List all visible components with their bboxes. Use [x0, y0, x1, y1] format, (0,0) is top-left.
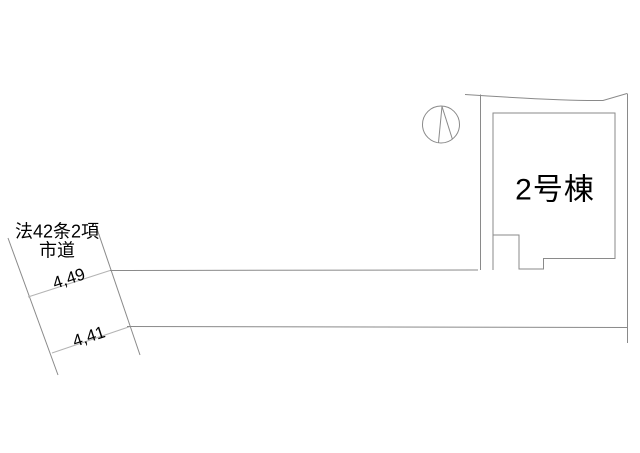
road-type-label: 市道: [39, 242, 75, 261]
bottom-boundary-line: [127, 327, 628, 328]
driveway-upper-boundary-line: [110, 270, 478, 271]
survey-marker-chord-left: [439, 107, 443, 143]
top-boundary-line: [465, 94, 627, 101]
site-plan: 法42条2項 市道 4,49 4,41 2号棟: [0, 0, 640, 453]
survey-marker-circle: [423, 106, 460, 143]
road-law-label: 法42条2項: [15, 223, 99, 242]
survey-marker-icon: [423, 106, 460, 143]
survey-marker-chord-right: [442, 107, 453, 140]
building-label: 2号棟: [515, 174, 595, 206]
